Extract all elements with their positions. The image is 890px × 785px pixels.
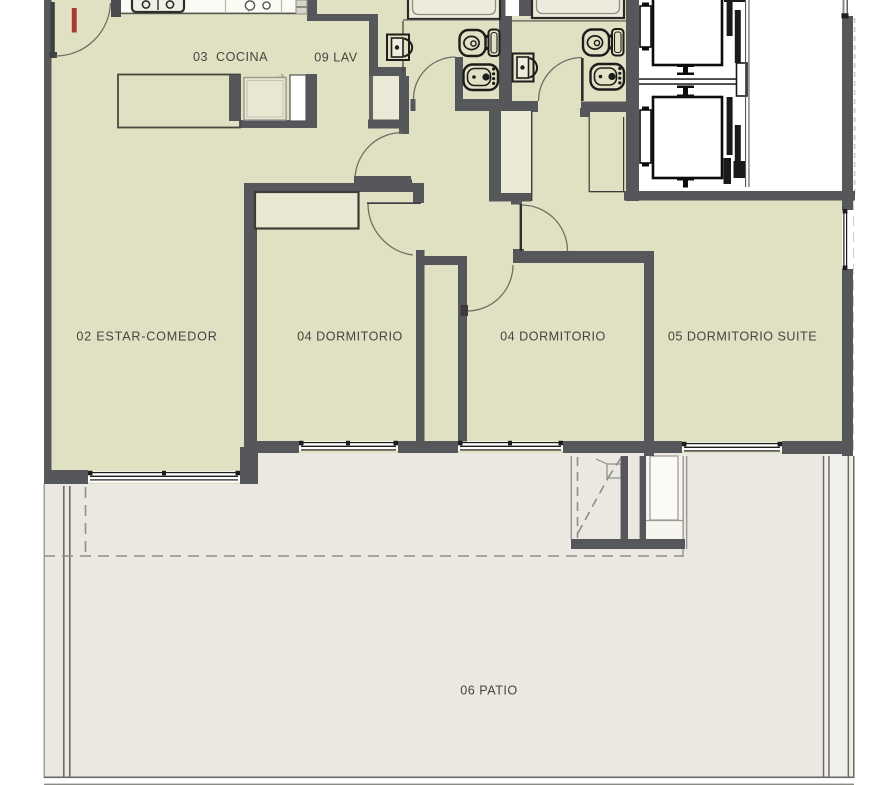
svg-text:04 DORMITORIO: 04 DORMITORIO — [297, 330, 403, 344]
svg-text:02 ESTAR-COMEDOR: 02 ESTAR-COMEDOR — [76, 330, 217, 344]
svg-text:03 COCINA: 03 COCINA — [193, 50, 268, 64]
svg-text:09 LAV: 09 LAV — [314, 51, 357, 65]
svg-text:05 DORMITORIO SUITE: 05 DORMITORIO SUITE — [668, 330, 817, 344]
svg-text:06 PATIO: 06 PATIO — [460, 684, 517, 698]
svg-text:04 DORMITORIO: 04 DORMITORIO — [500, 330, 606, 344]
